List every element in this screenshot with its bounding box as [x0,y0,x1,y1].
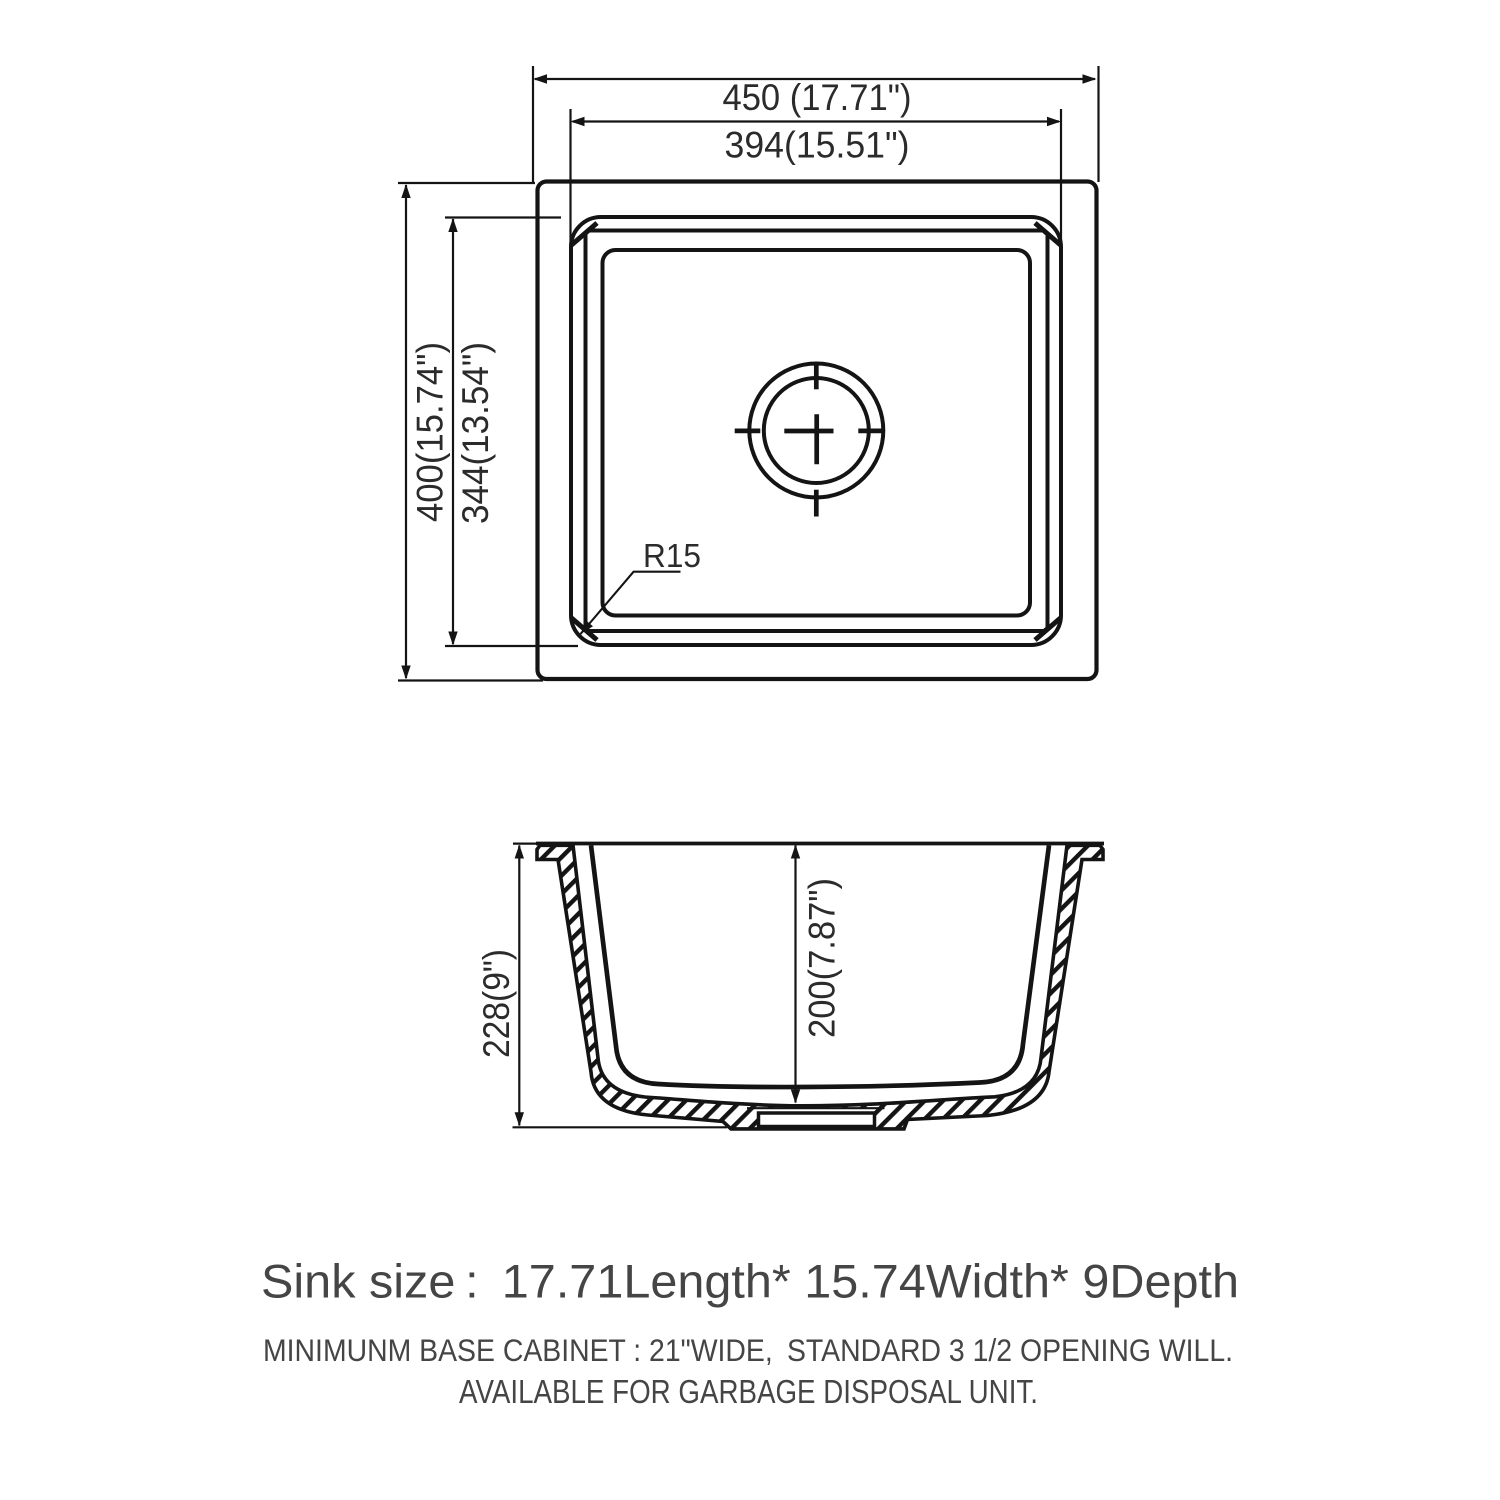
svg-text:394(15.51"): 394(15.51") [725,125,910,166]
svg-text:228(9"): 228(9") [476,949,517,1058]
svg-text:450 (17.71"): 450 (17.71") [723,77,912,118]
svg-text:MINIMUNM BASE CABINET : 21"WID: MINIMUNM BASE CABINET : 21"WIDE, STANDAR… [263,1332,1233,1368]
svg-text:344(13.54"): 344(13.54") [455,342,496,524]
svg-text:200(7.87"): 200(7.87") [802,878,843,1038]
svg-text:Sink size : 17.71Length* 15.7: Sink size : 17.71Length* 15.74Width* 9De… [261,1256,1239,1309]
svg-text:400(15.74"): 400(15.74") [410,342,451,522]
svg-text:R15: R15 [643,537,701,574]
svg-text:AVAILABLE FOR GARBAGE DISPOSAL: AVAILABLE FOR GARBAGE DISPOSAL UNIT. [459,1373,1038,1410]
